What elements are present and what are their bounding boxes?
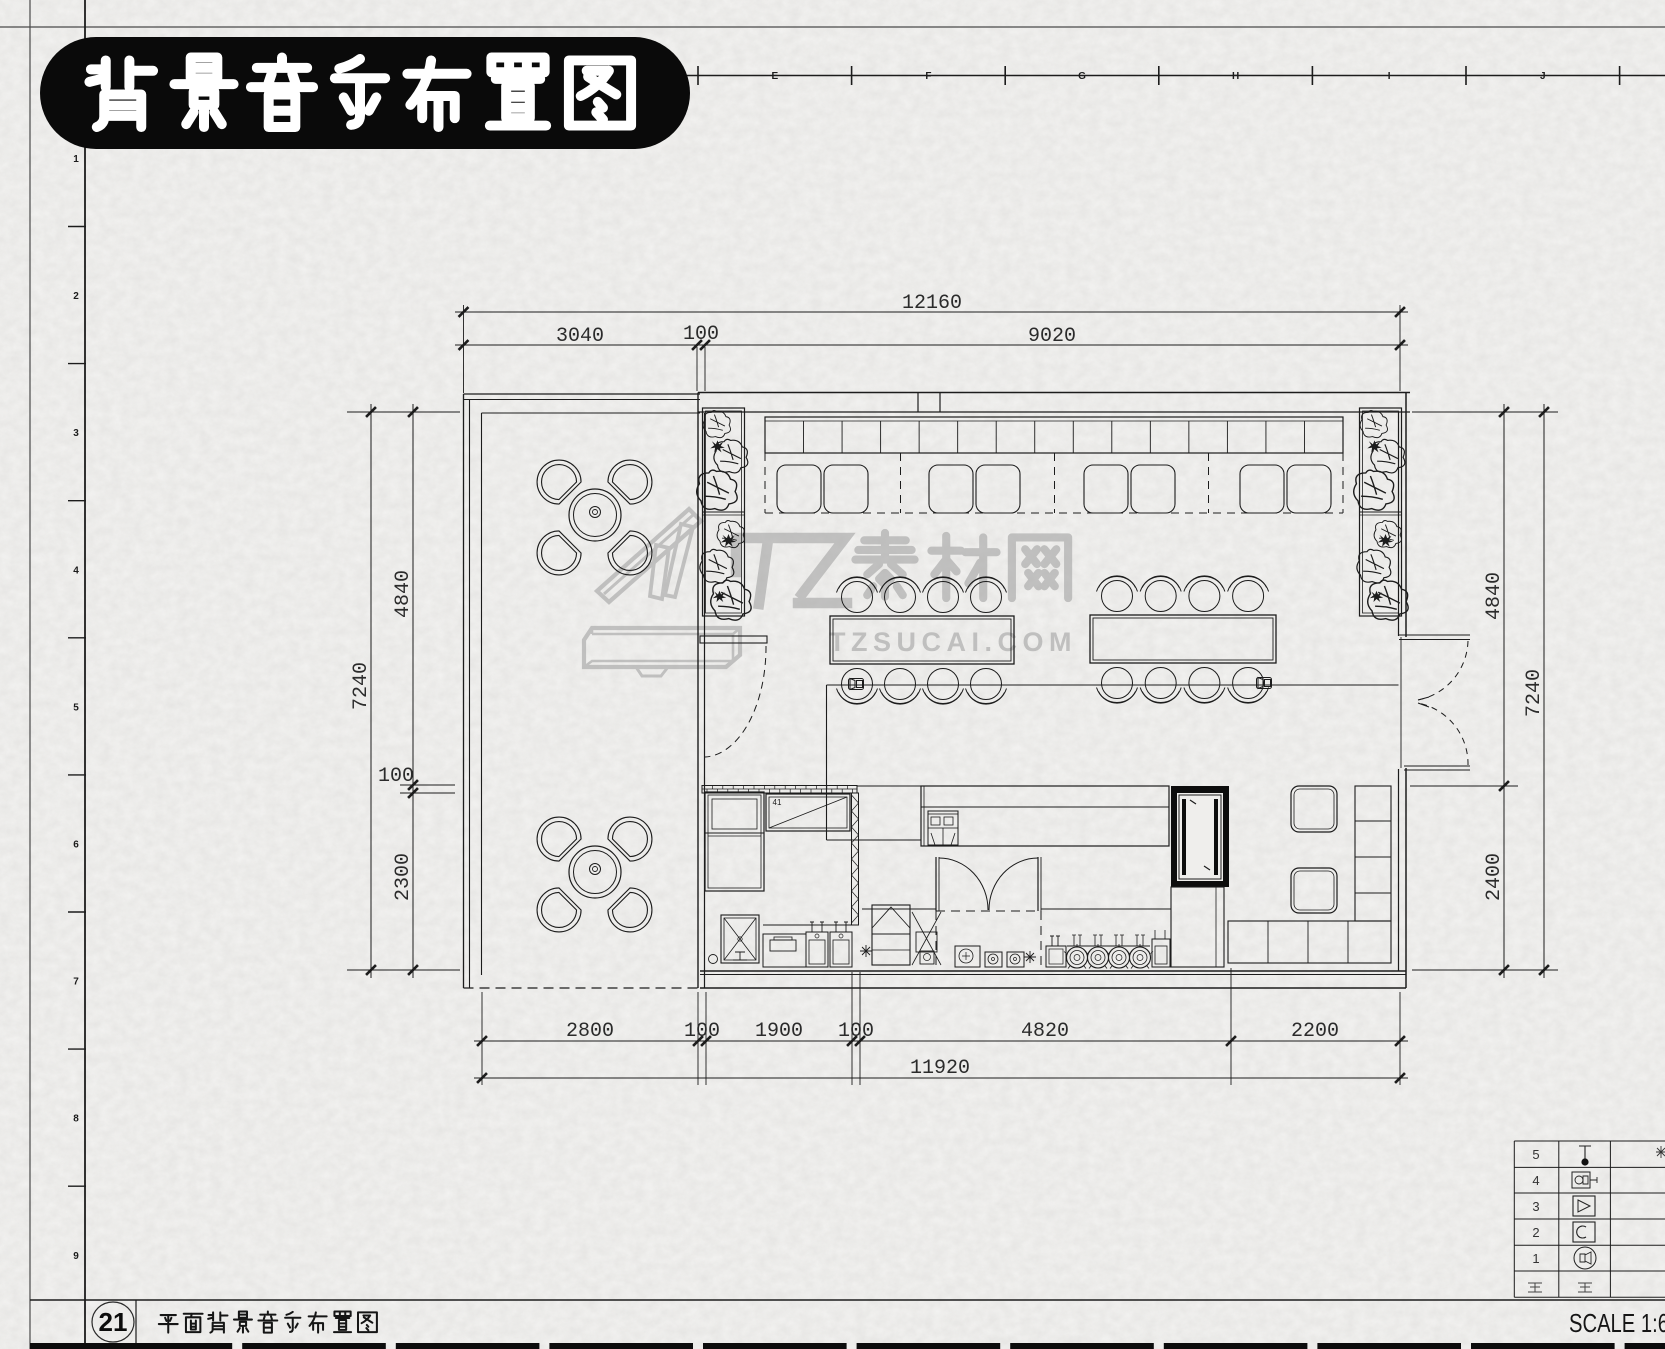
svg-text:12160: 12160 [902,292,962,315]
svg-text:6: 6 [73,840,79,851]
svg-text:4: 4 [73,565,79,576]
svg-text:3: 3 [73,428,79,439]
svg-text:2: 2 [73,291,79,302]
svg-text:TZSUCAI.COM: TZSUCAI.COM [829,627,1077,657]
svg-text:21: 21 [99,1307,128,1337]
svg-text:2800: 2800 [566,1020,614,1043]
svg-text:I: I [1388,71,1391,82]
svg-text:4840: 4840 [392,570,415,618]
svg-text:5: 5 [1532,1147,1539,1162]
svg-text:2300: 2300 [392,853,415,901]
svg-text:1: 1 [73,154,79,165]
svg-text:7: 7 [73,977,79,988]
svg-text:J: J [1540,71,1546,82]
svg-text:9: 9 [73,1251,79,1262]
svg-text:3: 3 [1532,1199,1539,1214]
svg-text:2: 2 [1532,1225,1539,1240]
svg-text:3040: 3040 [556,325,604,348]
svg-text:9020: 9020 [1028,325,1076,348]
svg-text:100: 100 [378,765,414,788]
svg-text:8: 8 [73,1114,79,1125]
svg-text:7240: 7240 [1523,669,1546,717]
svg-text:4: 4 [1532,1173,1539,1188]
svg-text:F: F [925,71,931,82]
svg-text:100: 100 [838,1020,874,1043]
svg-text:41: 41 [773,798,782,807]
svg-text:7240: 7240 [350,662,373,710]
svg-text:G: G [1078,71,1086,82]
svg-text:4820: 4820 [1021,1020,1069,1043]
svg-text:1900: 1900 [755,1020,803,1043]
svg-text:100: 100 [683,323,719,346]
svg-text:H: H [1232,71,1239,82]
svg-text:2200: 2200 [1291,1020,1339,1043]
svg-text:4840: 4840 [1483,572,1506,620]
svg-text:1: 1 [1532,1251,1539,1266]
svg-text:5: 5 [73,702,79,713]
svg-text:E: E [771,71,778,82]
svg-text:11920: 11920 [910,1057,970,1080]
svg-text:SCALE 1:6: SCALE 1:6 [1569,1308,1665,1338]
svg-text:2400: 2400 [1483,853,1506,901]
svg-text:100: 100 [684,1020,720,1043]
